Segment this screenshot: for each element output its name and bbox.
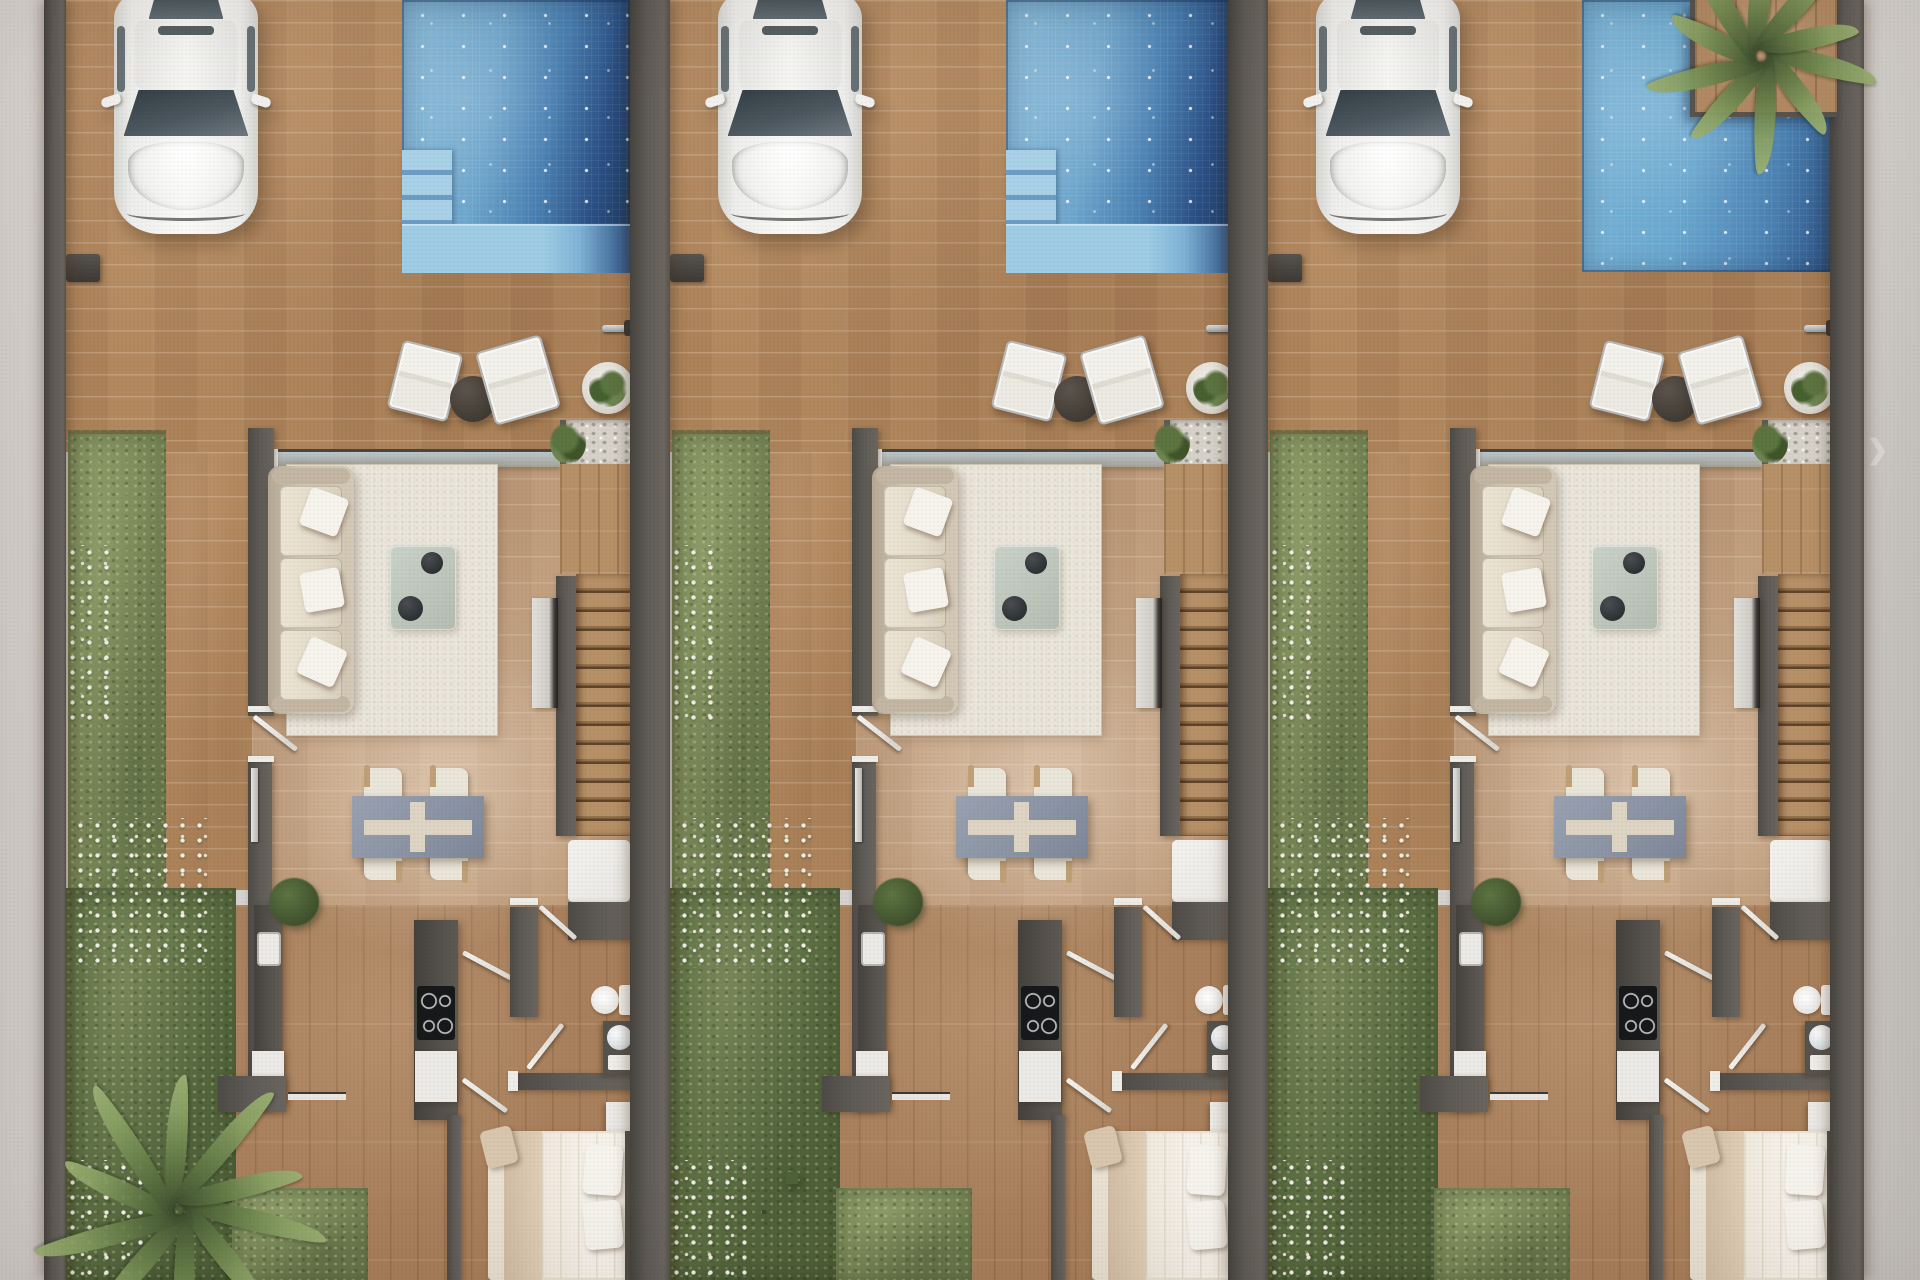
door-jamb	[508, 1071, 518, 1091]
flower-cluster	[668, 1160, 748, 1280]
wall-trim	[1453, 768, 1460, 842]
sofa-armrest	[1474, 468, 1552, 484]
car-side-window	[851, 26, 859, 92]
bed-pillow	[582, 1144, 623, 1197]
sofa	[1470, 466, 1556, 714]
interior-wall	[1770, 902, 1836, 940]
decor-bowl	[1025, 552, 1047, 574]
door-jamb	[248, 756, 274, 762]
double-bed	[488, 1131, 634, 1280]
sofa	[268, 466, 354, 714]
car-rear-window	[753, 0, 828, 19]
coffee-table	[390, 546, 456, 630]
door-threshold	[1490, 1092, 1548, 1100]
swimming-pool-lshape	[1582, 0, 1832, 272]
flower-cluster	[1274, 818, 1412, 968]
white-car	[1310, 0, 1466, 234]
staircase	[576, 574, 634, 836]
island-counter-end	[415, 1051, 457, 1102]
door-jamb	[510, 898, 538, 905]
decor-bowl	[398, 596, 423, 621]
sofa-armrest	[272, 468, 350, 484]
interior-wall	[822, 1076, 890, 1112]
washing-machine	[1770, 840, 1832, 902]
stair-landing	[1762, 464, 1836, 574]
car-side-window	[247, 26, 255, 92]
shrub	[1471, 878, 1521, 926]
pool-shelf	[402, 224, 630, 273]
cooktop	[1619, 986, 1657, 1040]
staircase	[1778, 574, 1836, 836]
car-side-window	[1319, 26, 1327, 92]
tv-wall	[1758, 576, 1778, 836]
leafy-tree	[756, 1168, 916, 1280]
bed-pillow	[1784, 1144, 1825, 1197]
toilet-bowl	[1195, 986, 1223, 1014]
decor-bowl	[1623, 552, 1645, 574]
sofa	[872, 466, 958, 714]
toilet	[591, 985, 635, 1015]
boundary-wall-right	[1830, 0, 1864, 1280]
potted-plant	[582, 362, 634, 414]
townhouse-unit-1	[64, 0, 634, 1280]
car-windshield	[728, 90, 853, 136]
cooktop	[417, 986, 455, 1040]
car-side-window	[1449, 26, 1457, 92]
double-bed	[1092, 1131, 1238, 1280]
car-sunroof	[158, 26, 214, 35]
throw-pillow	[903, 567, 949, 613]
car-windshield	[124, 90, 249, 136]
door-jamb	[1112, 1071, 1122, 1091]
bed-pillow	[1784, 1199, 1826, 1250]
planter-plant	[550, 422, 586, 464]
car-sunroof	[1360, 26, 1416, 35]
flower-cluster	[64, 545, 116, 730]
garden-bulge	[1434, 1188, 1570, 1280]
sofa-armrest	[876, 468, 954, 484]
kitchen-sink	[257, 932, 281, 966]
plant-foliage	[589, 369, 627, 407]
bedroom-wall	[1649, 1115, 1663, 1280]
shrub	[873, 878, 923, 926]
white-car	[712, 0, 868, 234]
door-threshold	[892, 1092, 950, 1100]
door-jamb	[852, 756, 878, 762]
townhouse-unit-2	[668, 0, 1238, 1280]
wall-charger-box	[66, 254, 100, 282]
throw-pillow	[299, 567, 345, 613]
bed-pillow	[1186, 1144, 1227, 1197]
kitchen-sink	[861, 932, 885, 966]
bedroom-wall	[510, 1073, 634, 1090]
boundary-wall-left	[44, 0, 66, 1280]
tv-wall	[1160, 576, 1180, 836]
decor-bowl	[421, 552, 443, 574]
planter-plant	[1752, 422, 1788, 464]
washing-machine	[1172, 840, 1234, 902]
car-rear-window	[149, 0, 224, 19]
shrub	[269, 878, 319, 926]
wall-trim	[855, 768, 862, 842]
table-runner	[364, 820, 472, 835]
island-counter-end	[1617, 1051, 1659, 1102]
table-runner	[968, 820, 1076, 835]
car-side-window	[721, 26, 729, 92]
car-windshield	[1326, 90, 1451, 136]
white-car	[108, 0, 264, 234]
decor-bowl	[1002, 596, 1027, 621]
pool-shelf	[1006, 224, 1234, 273]
throw-pillow	[1501, 567, 1547, 613]
dining-table	[956, 796, 1088, 858]
plant-foliage	[1791, 369, 1829, 407]
car-side-window	[117, 26, 125, 92]
bedroom-wall	[1712, 1073, 1836, 1090]
car-front-bumper	[731, 206, 850, 221]
door-jamb	[1710, 1071, 1720, 1091]
wall-charger-box	[1268, 254, 1302, 282]
island-counter-end	[1019, 1051, 1061, 1102]
interior-wall	[1420, 1076, 1488, 1112]
bed-pillow	[582, 1199, 624, 1250]
plant-foliage	[1193, 369, 1231, 407]
wash-basin	[607, 1025, 632, 1050]
potted-plant	[1784, 362, 1836, 414]
cooktop	[1021, 986, 1059, 1040]
tv-console	[532, 598, 558, 708]
party-wall-2-3	[1228, 0, 1268, 1280]
bathroom-wall	[510, 907, 538, 1017]
coffee-table	[994, 546, 1060, 630]
car-front-bumper	[127, 206, 246, 221]
stair-landing	[1164, 464, 1238, 574]
bed-pillow	[1186, 1199, 1228, 1250]
door-jamb	[1114, 898, 1142, 905]
units-host	[0, 0, 1920, 1280]
party-wall-1-2	[630, 0, 670, 1280]
wall-trim	[251, 768, 258, 842]
door-jamb	[1450, 756, 1476, 762]
bedroom-wall	[447, 1115, 461, 1280]
table-runner	[1566, 820, 1674, 835]
flower-cluster	[668, 545, 720, 730]
car-rear-window	[1351, 0, 1426, 19]
car-front-bumper	[1329, 206, 1448, 221]
flower-cluster	[1266, 1160, 1346, 1280]
flower-cluster	[72, 818, 210, 968]
stair-landing	[560, 464, 634, 574]
towel	[608, 1055, 631, 1070]
wall-charger-box	[670, 254, 704, 282]
tv-console	[1734, 598, 1760, 708]
door-jamb	[1712, 898, 1740, 905]
decor-bowl	[1600, 596, 1625, 621]
toilet-bowl	[1793, 986, 1821, 1014]
townhouse-unit-3	[1266, 0, 1836, 1280]
bathroom-wall	[1712, 907, 1740, 1017]
gravel-planter	[560, 420, 640, 467]
bedroom-wall	[1051, 1115, 1065, 1280]
flower-cluster	[676, 818, 814, 968]
washing-machine	[568, 840, 630, 902]
door-threshold	[288, 1092, 346, 1100]
toilet-bowl	[591, 986, 619, 1014]
car-sunroof	[762, 26, 818, 35]
interior-wall	[568, 902, 634, 940]
coffee-table	[1592, 546, 1658, 630]
flower-cluster	[1266, 545, 1318, 730]
swimming-pool	[402, 0, 630, 273]
bedroom-wall	[1114, 1073, 1238, 1090]
swimming-pool	[1006, 0, 1234, 273]
tv-console	[1136, 598, 1162, 708]
dining-table	[1554, 796, 1686, 858]
bathroom-wall	[1114, 907, 1142, 1017]
kitchen-sink	[1459, 932, 1483, 966]
planter-plant	[1154, 422, 1190, 464]
double-bed	[1690, 1131, 1836, 1280]
pool-palm-planter	[1690, 0, 1837, 117]
tv-wall	[556, 576, 576, 836]
dining-table	[352, 796, 484, 858]
floor-plan-render: ❯	[0, 0, 1920, 1280]
